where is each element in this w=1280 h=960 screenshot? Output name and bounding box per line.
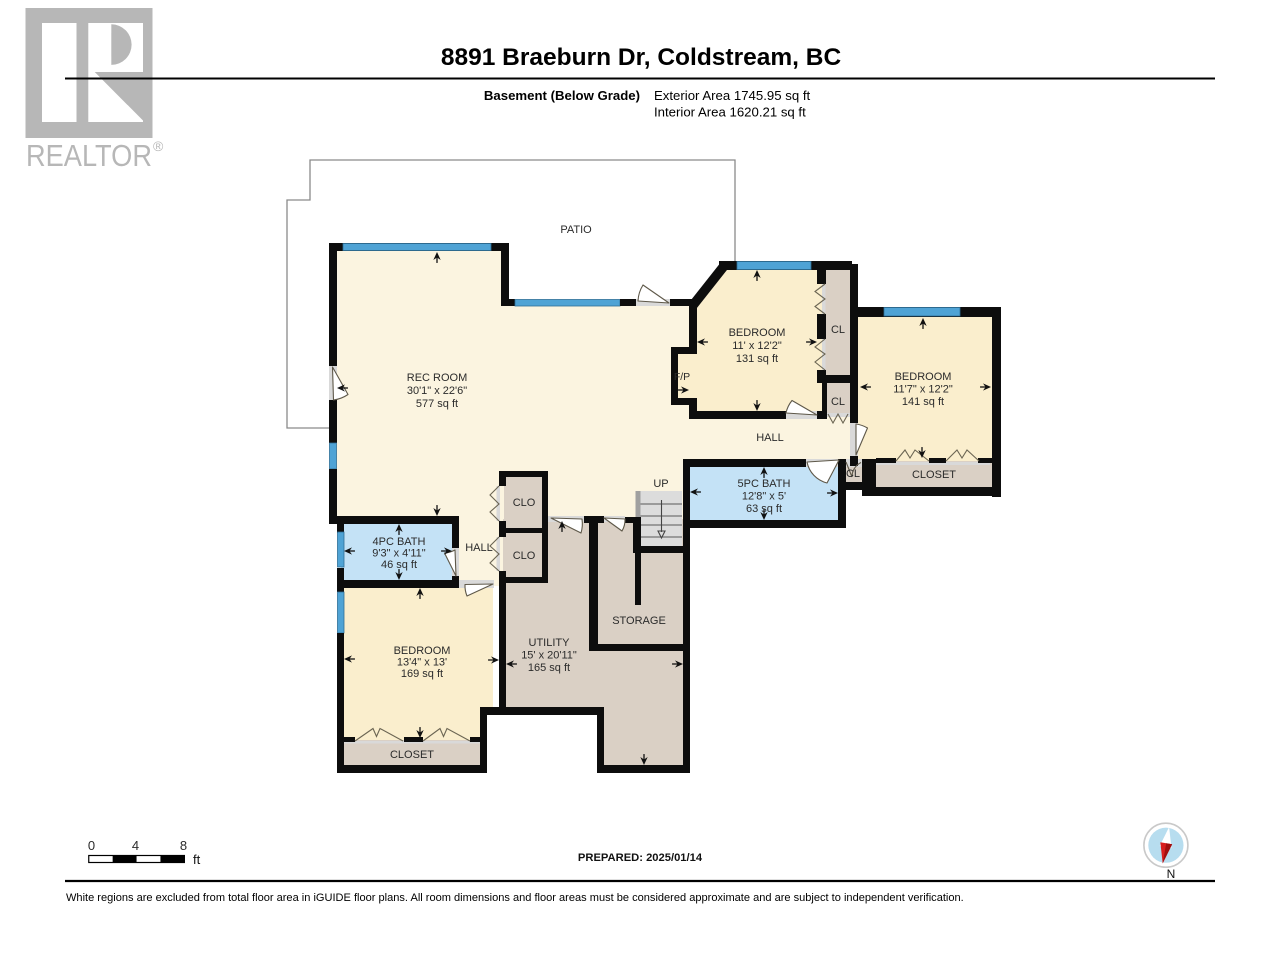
svg-text:BEDROOM: BEDROOM bbox=[895, 371, 952, 383]
svg-text:141 sq ft: 141 sq ft bbox=[902, 396, 944, 408]
svg-text:8: 8 bbox=[180, 838, 187, 853]
svg-text:9'3" x 4'11": 9'3" x 4'11" bbox=[372, 548, 425, 560]
svg-text:46 sq ft: 46 sq ft bbox=[381, 559, 417, 571]
svg-text:5PC BATH: 5PC BATH bbox=[738, 478, 791, 490]
svg-text:PATIO: PATIO bbox=[560, 224, 592, 236]
svg-text:BEDROOM: BEDROOM bbox=[729, 327, 786, 339]
svg-text:577 sq ft: 577 sq ft bbox=[416, 398, 458, 410]
svg-text:15' x 20'11": 15' x 20'11" bbox=[521, 650, 577, 662]
svg-text:0: 0 bbox=[88, 838, 95, 853]
svg-text:12'8" x 5': 12'8" x 5' bbox=[742, 491, 786, 503]
svg-text:CLOSET: CLOSET bbox=[390, 749, 434, 761]
svg-text:30'1" x 22'6": 30'1" x 22'6" bbox=[407, 385, 467, 397]
svg-text:4PC BATH: 4PC BATH bbox=[373, 536, 426, 548]
svg-text:HALL: HALL bbox=[465, 542, 493, 554]
svg-text:131 sq ft: 131 sq ft bbox=[736, 353, 778, 365]
svg-text:Basement (Below Grade): Basement (Below Grade) bbox=[484, 88, 640, 103]
svg-text:CLOSET: CLOSET bbox=[912, 469, 956, 481]
svg-text:Interior Area 1620.21 sq ft: Interior Area 1620.21 sq ft bbox=[654, 105, 806, 120]
svg-text:CL: CL bbox=[831, 324, 845, 336]
svg-text:ft: ft bbox=[193, 852, 201, 867]
svg-text:165 sq ft: 165 sq ft bbox=[528, 662, 570, 674]
svg-text:169 sq ft: 169 sq ft bbox=[401, 668, 443, 680]
svg-text:HALL: HALL bbox=[756, 432, 784, 444]
svg-text:63 sq ft: 63 sq ft bbox=[746, 503, 782, 515]
svg-text:BEDROOM: BEDROOM bbox=[394, 645, 451, 657]
svg-text:4: 4 bbox=[132, 838, 139, 853]
svg-text:UP: UP bbox=[653, 478, 668, 490]
svg-text:11' x 12'2": 11' x 12'2" bbox=[732, 340, 782, 352]
svg-text:F/P: F/P bbox=[674, 371, 690, 383]
svg-text:PREPARED: 2025/01/14: PREPARED: 2025/01/14 bbox=[578, 852, 703, 864]
svg-text:REALTOR: REALTOR bbox=[26, 138, 152, 173]
svg-text:STORAGE: STORAGE bbox=[612, 615, 666, 627]
svg-text:11'7" x 12'2": 11'7" x 12'2" bbox=[893, 384, 953, 396]
svg-text:CLO: CLO bbox=[513, 497, 536, 509]
svg-text:8891 Braeburn Dr, Coldstream,: 8891 Braeburn Dr, Coldstream, BC bbox=[441, 44, 842, 71]
svg-text:13'4" x 13': 13'4" x 13' bbox=[397, 657, 447, 669]
svg-text:Exterior Area 1745.95 sq ft: Exterior Area 1745.95 sq ft bbox=[654, 88, 810, 103]
svg-text:White regions are excluded fro: White regions are excluded from total fl… bbox=[66, 892, 964, 904]
svg-text:CL: CL bbox=[831, 396, 845, 408]
svg-text:®: ® bbox=[153, 138, 164, 154]
svg-text:CLO: CLO bbox=[513, 550, 536, 562]
svg-text:REC ROOM: REC ROOM bbox=[407, 372, 468, 384]
svg-text:N: N bbox=[1167, 867, 1176, 881]
svg-text:CL: CL bbox=[846, 468, 860, 480]
svg-text:UTILITY: UTILITY bbox=[529, 637, 571, 649]
